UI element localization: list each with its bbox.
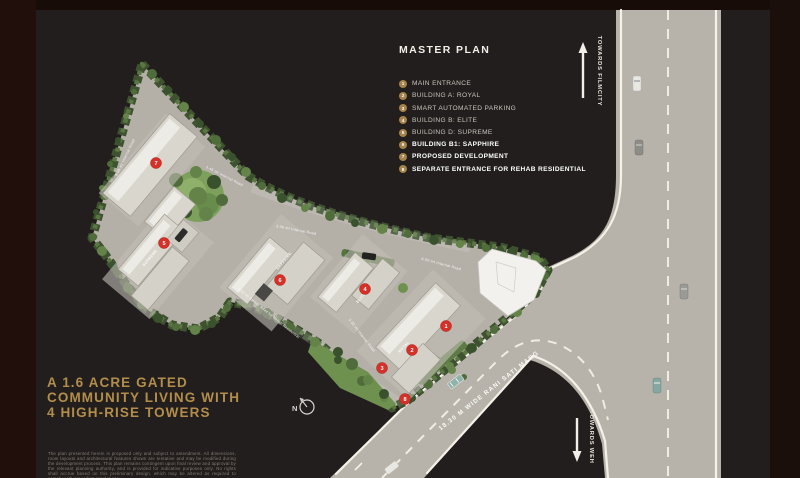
legend-item-label: PROPOSED DEVELOPMENT — [412, 153, 508, 160]
tree-icon — [404, 230, 412, 238]
car-icon — [653, 378, 661, 393]
svg-text:2: 2 — [410, 348, 413, 354]
tree-icon — [216, 194, 228, 206]
legend-bullet: 5 — [399, 129, 407, 137]
legend-bullet: 8 — [399, 165, 407, 173]
svg-text:5: 5 — [162, 241, 165, 247]
legend-item-label: SEPARATE ENTRANCE FOR REHAB RESIDENTIAL — [412, 166, 586, 173]
legend-item-label: BUILDING A: ROYAL — [412, 92, 481, 99]
marker-badge: 7 — [151, 158, 162, 169]
marker-badge: 5 — [159, 238, 170, 249]
page-title: MASTER PLAN — [399, 44, 679, 56]
legend-bullet: 2 — [399, 92, 407, 100]
legend-bullet: 3 — [399, 104, 407, 112]
headline: A 1.6 ACRE GATED COMMUNITY LIVING WITH 4… — [47, 375, 240, 420]
svg-text:1: 1 — [444, 324, 447, 330]
legend-item: 3SMART AUTOMATED PARKING — [399, 104, 679, 112]
legend-item: 8SEPARATE ENTRANCE FOR REHAB RESIDENTIAL — [399, 165, 679, 173]
legend-item-label: SMART AUTOMATED PARKING — [412, 105, 516, 112]
tree-icon — [467, 343, 477, 353]
marker-badge: 4 — [360, 284, 371, 295]
headline-line: 4 HIGH-RISE TOWERS — [47, 405, 240, 420]
legend: MASTER PLAN 1MAIN ENTRANCE 2BUILDING A: … — [399, 44, 679, 178]
legend-item-label: BUILDING B1: SAPPHIRE — [412, 141, 499, 148]
legend-item: 6BUILDING B1: SAPPHIRE — [399, 141, 679, 149]
legend-item: 4BUILDING B: ELITE — [399, 117, 679, 125]
headline-line: COMMUNITY LIVING WITH — [47, 390, 240, 405]
tree-icon — [277, 193, 287, 203]
legend-item: 1MAIN ENTRANCE — [399, 80, 679, 88]
legend-item-label: MAIN ENTRANCE — [412, 80, 471, 87]
tree-icon — [301, 204, 309, 212]
tree-icon — [131, 89, 137, 95]
north-compass-icon: N — [292, 398, 314, 414]
tree-icon — [377, 224, 387, 234]
marker-badge: 1 — [441, 321, 452, 332]
towards-weh: TOWARDS WEH — [573, 410, 595, 463]
tree-icon — [196, 120, 204, 128]
lawn — [398, 283, 408, 293]
tree-icon — [147, 69, 157, 79]
marker-badge: 2 — [407, 345, 418, 356]
legend-item: 5BUILDING D: SUPREME — [399, 129, 679, 137]
svg-text:7: 7 — [154, 161, 157, 167]
master-plan-slide: SUPREME SAPPHIRE ELITE ROYAL 3.05 mt Int… — [0, 0, 800, 478]
svg-text:8: 8 — [403, 397, 406, 403]
tree-icon — [258, 182, 266, 190]
tree-icon — [325, 211, 335, 221]
svg-text:6: 6 — [278, 278, 281, 284]
tree-icon — [379, 389, 389, 399]
tree-icon — [490, 326, 498, 334]
tree-icon — [179, 102, 189, 112]
legend-bullet: 4 — [399, 116, 407, 124]
tree-icon — [456, 240, 464, 248]
tree-icon — [107, 161, 113, 167]
down-arrow-head-icon — [573, 451, 582, 462]
tree-icon — [190, 166, 202, 178]
tree-icon — [351, 219, 359, 227]
svg-text:3: 3 — [380, 366, 383, 372]
car-icon — [680, 284, 688, 299]
marker-badge: 6 — [275, 275, 286, 286]
headline-line: A 1.6 ACRE GATED — [47, 375, 240, 390]
legend-item-label: BUILDING B: ELITE — [412, 117, 477, 124]
disclaimer-text: The plan presented herein is proposed on… — [48, 451, 236, 478]
tree-icon — [363, 375, 373, 385]
tree-icon — [241, 167, 251, 177]
tree-icon — [429, 235, 439, 245]
tree-icon — [89, 233, 97, 241]
tree-icon — [346, 358, 358, 370]
tree-icon — [482, 244, 490, 252]
tree-icon — [93, 209, 99, 215]
marker-badge: 8 — [400, 394, 411, 405]
tree-icon — [211, 135, 221, 145]
tree-icon — [334, 356, 342, 364]
legend-bullet: 1 — [399, 80, 407, 88]
tree-icon — [153, 313, 163, 323]
legend-item: 7PROPOSED DEVELOPMENT — [399, 153, 679, 161]
legend-bullet: 7 — [399, 153, 407, 161]
marker-badge: 3 — [377, 363, 388, 374]
tree-icon — [207, 175, 221, 189]
towards-weh-label: TOWARDS WEH — [588, 410, 594, 463]
tree-icon — [190, 325, 200, 335]
tree-icon — [208, 320, 216, 328]
tree-icon — [172, 323, 180, 331]
tree-icon — [115, 137, 121, 143]
tree-icon — [310, 337, 320, 347]
legend-item-label: BUILDING D: SUPREME — [412, 129, 493, 136]
tree-icon — [223, 304, 231, 312]
tree-icon — [199, 207, 213, 221]
tree-icon — [448, 366, 456, 374]
tree-icon — [333, 347, 343, 357]
tree-icon — [164, 86, 172, 94]
legend-bullet: 6 — [399, 141, 407, 149]
tree-icon — [123, 113, 129, 119]
tree-icon — [228, 153, 236, 161]
legend-item: 2BUILDING A: ROYAL — [399, 92, 679, 100]
north-label: N — [292, 404, 297, 413]
tree-icon — [97, 246, 107, 256]
